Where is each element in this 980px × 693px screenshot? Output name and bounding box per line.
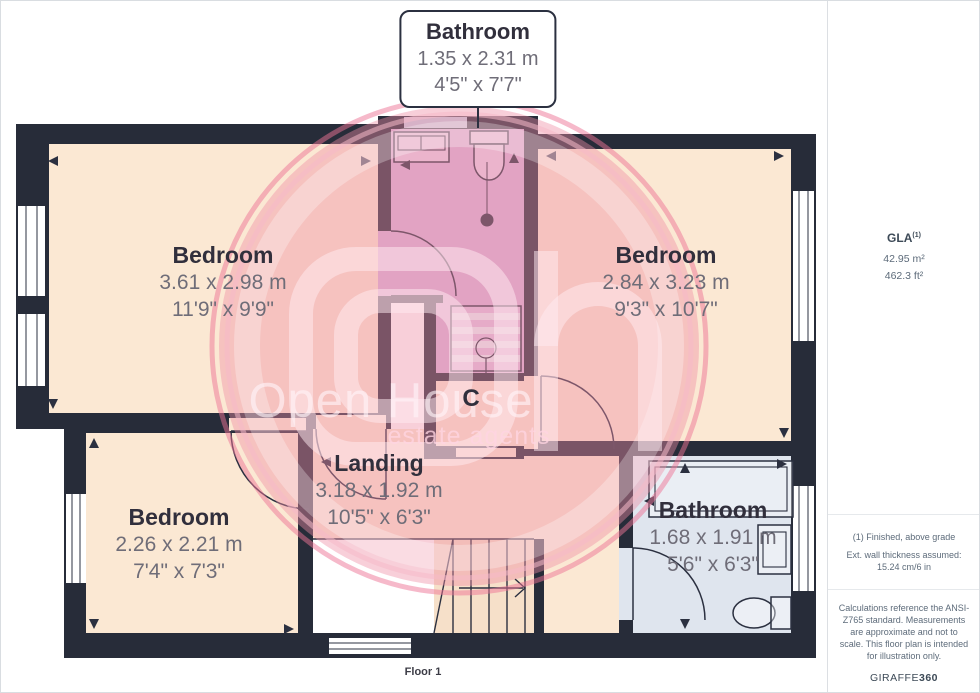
floor-label: Floor 1 [405, 666, 442, 678]
callout-room-name: Bathroom [417, 18, 538, 46]
bathroom-callout: Bathroom 1.35 x 2.31 m 4'5" x 7'7" [399, 10, 556, 108]
disclaimer-section: Calculations reference the ANSI-Z765 sta… [828, 589, 980, 684]
watermark-title: Open House [248, 373, 533, 429]
callout-imperial: 4'5" x 7'7" [417, 72, 538, 98]
giraffe360-logo: GIRAFFE360 [838, 672, 970, 684]
label-bedroom-top-right: Bedroom 2.84 x 3.23 m 9'3" x 10'7" [602, 241, 729, 323]
window-left-upper-2 [18, 314, 45, 386]
callout-metric: 1.35 x 2.31 m [417, 46, 538, 72]
window-right-bathroom [793, 486, 814, 591]
label-bathroom-bottom: Bathroom 1.68 x 1.91 m 5'6" x 6'3" [649, 496, 776, 578]
floorplan-page: Open House estate agents Bathroom 1.35 x… [0, 0, 980, 693]
info-sidebar: GLA(1) 42.95 m² 462.3 ft² (1) Finished, … [827, 1, 980, 693]
window-right-bedroom [793, 191, 814, 341]
gla-section: GLA(1) 42.95 m² 462.3 ft² [828, 1, 980, 514]
gla-area-metric: 42.95 m² [883, 251, 924, 268]
window-left-lower [66, 494, 86, 583]
gla-title: GLA(1) [887, 231, 921, 245]
toilet-bottom [733, 597, 791, 629]
gla-area-imperial: 462.3 ft² [885, 268, 924, 285]
label-landing: Landing 3.18 x 1.92 m 10'5" x 6'3" [315, 449, 442, 531]
watermark-subtitle: estate agents [387, 422, 550, 451]
note-finished-grade: (1) Finished, above grade [853, 531, 956, 543]
note-wall-thickness: Ext. wall thickness assumed: 15.24 cm/6 … [840, 549, 968, 573]
window-left-upper-1 [18, 206, 45, 296]
window-bottom [329, 638, 411, 654]
closet-label: C [462, 385, 479, 413]
label-bedroom-top-left: Bedroom 3.61 x 2.98 m 11'9" x 9'9" [159, 241, 286, 323]
label-bedroom-bottom-left: Bedroom 2.26 x 2.21 m 7'4" x 7'3" [115, 503, 242, 585]
watermark-logo [212, 99, 706, 593]
disclaimer-text: Calculations reference the ANSI-Z765 sta… [838, 602, 970, 662]
notes-section: (1) Finished, above grade Ext. wall thic… [828, 514, 980, 589]
